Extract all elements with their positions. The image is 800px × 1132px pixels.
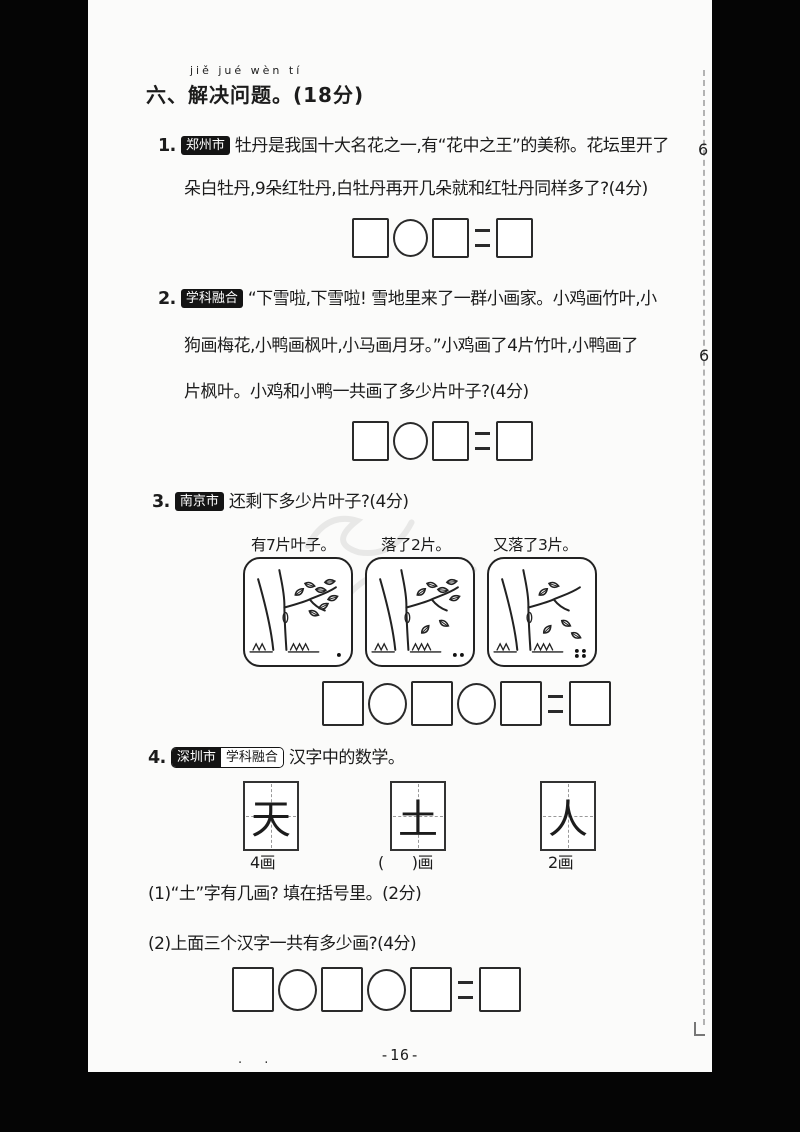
counter-dot — [575, 654, 579, 658]
operator-circle[interactable] — [367, 969, 406, 1011]
answer-box[interactable] — [352, 421, 389, 461]
q4-city-badge: 深圳市 — [172, 748, 221, 767]
section-pinyin: jiě jué wèn tí — [190, 64, 302, 77]
answer-box[interactable] — [410, 967, 452, 1012]
leaf-icon — [327, 595, 338, 602]
q1-edge-digit: 6 — [698, 140, 708, 159]
leaf-icon — [560, 619, 571, 629]
leaf-icon — [325, 580, 335, 585]
operator-circle[interactable] — [457, 683, 496, 725]
tree-drawing-2 — [367, 559, 468, 660]
leaf-icon — [438, 619, 449, 629]
page-border-dashed-line — [703, 70, 705, 1025]
q1-line2: 朵白牡丹,9朵红牡丹,白牡丹再开几朵就和红牡丹同样多了?(4分) — [184, 174, 648, 199]
card-character-2: 土 — [392, 783, 444, 849]
q4-combined-badge: 深圳市学科融合 — [171, 747, 284, 768]
answer-box[interactable] — [322, 681, 364, 726]
leaf-icon — [318, 602, 329, 610]
leaf-icon — [447, 580, 457, 585]
tree-picture-3 — [487, 557, 597, 667]
q1-number: 1. — [158, 136, 176, 156]
q3-city-badge: 南京市 — [175, 492, 224, 511]
leaf-icon — [548, 581, 559, 589]
q4-sub2: (2)上面三个汉字一共有多少画?(4分) — [148, 929, 416, 954]
leaf-icon — [294, 587, 305, 596]
equation-row-4 — [232, 967, 521, 1012]
leaf-icon — [538, 587, 549, 596]
counter-dot — [582, 654, 586, 658]
tree-drawing-3 — [489, 559, 590, 660]
bracket-open: ( — [378, 853, 384, 872]
q1-line1: 1.郑州市牡丹是我国十大名花之一,有“花中之王”的美称。花坛里开了 — [158, 131, 669, 156]
tree-caption-2: 落了2片。 — [381, 533, 450, 555]
q2-edge-digit: 6 — [699, 346, 709, 365]
q2-number: 2. — [158, 289, 176, 309]
q4-subject-badge: 学科融合 — [221, 748, 283, 767]
q4-number: 4. — [148, 748, 166, 768]
equation-row-3 — [322, 681, 611, 726]
scan-dots: . . — [238, 1052, 277, 1067]
card-character-3: 人 — [542, 783, 594, 849]
counter-dot — [337, 653, 341, 657]
answer-box[interactable] — [569, 681, 611, 726]
answer-box[interactable] — [479, 967, 521, 1012]
q2-line2: 狗画梅花,小鸭画枫叶,小马画月牙。”小鸡画了4片竹叶,小鸭画了 — [184, 331, 638, 356]
equals-sign — [548, 695, 563, 713]
leaf-icon — [426, 581, 437, 589]
tree-caption-3: 又落了3片。 — [493, 533, 577, 555]
tree-caption-1: 有7片叶子。 — [251, 533, 335, 555]
leaf-icon — [542, 624, 553, 634]
operator-circle[interactable] — [393, 422, 428, 460]
page-number: -16- — [380, 1046, 420, 1064]
answer-box[interactable] — [432, 218, 469, 258]
counter-dot — [460, 653, 464, 657]
operator-circle[interactable] — [368, 683, 407, 725]
q3-number: 3. — [152, 492, 170, 512]
answer-box[interactable] — [500, 681, 542, 726]
section-title-text: 六、解决问题。 — [146, 83, 293, 107]
answer-box[interactable] — [352, 218, 389, 258]
q4-line: 4.深圳市学科融合汉字中的数学。 — [148, 743, 404, 768]
equals-sign — [475, 432, 490, 450]
answer-box[interactable] — [432, 421, 469, 461]
counter-dot — [575, 649, 579, 653]
worksheet-page: jiě jué wèn tí 六、解决问题。(18分) 1.郑州市牡丹是我国十大… — [88, 0, 712, 1072]
tree-picture-1 — [243, 557, 353, 667]
q1-text1: 牡丹是我国十大名花之一,有“花中之王”的美称。花坛里开了 — [235, 136, 669, 156]
q4-text: 汉字中的数学。 — [289, 748, 405, 768]
card-label-3: 2画 — [548, 849, 573, 873]
answer-box[interactable] — [496, 218, 533, 258]
answer-box[interactable] — [496, 421, 533, 461]
answer-box[interactable] — [232, 967, 274, 1012]
card-character-1: 天 — [245, 783, 297, 849]
counter-dot — [453, 653, 457, 657]
q3-text: 还剩下多少片叶子?(4分) — [229, 492, 409, 512]
operator-circle[interactable] — [278, 969, 317, 1011]
screen-background: { "section_header": { "pinyin": "jiě jué… — [0, 0, 800, 1132]
character-card-2: 土 — [390, 781, 446, 851]
leaf-icon — [304, 581, 315, 589]
leaf-icon — [308, 609, 319, 618]
q2-line1: 2.学科融合“下雪啦,下雪啦! 雪地里来了一群小画家。小鸡画竹叶,小 — [158, 284, 657, 309]
q2-line3: 片枫叶。小鸡和小鸭一共画了多少片叶子?(4分) — [184, 377, 529, 402]
operator-circle[interactable] — [393, 219, 428, 257]
leaf-icon — [449, 595, 460, 602]
counter-dot — [582, 649, 586, 653]
page-border-corner — [694, 1022, 705, 1036]
equation-row-1 — [352, 218, 533, 258]
card-label-2: ()画 — [378, 849, 433, 873]
tree-picture-2 — [365, 557, 475, 667]
character-card-1: 天 — [243, 781, 299, 851]
equals-sign — [458, 981, 473, 999]
character-card-3: 人 — [540, 781, 596, 851]
tree-drawing-1 — [245, 559, 346, 660]
bracket-close: )画 — [412, 853, 433, 872]
q1-city-badge: 郑州市 — [181, 136, 230, 155]
leaf-icon — [420, 624, 431, 634]
q4-sub1: (1)“土”字有几画? 填在括号里。(2分) — [148, 879, 421, 904]
answer-box[interactable] — [411, 681, 453, 726]
leaf-icon — [571, 631, 582, 640]
q2-subject-badge: 学科融合 — [181, 289, 243, 308]
leaf-icon — [416, 587, 427, 596]
answer-box[interactable] — [321, 967, 363, 1012]
equation-row-2 — [352, 421, 533, 461]
section-points: (18分) — [293, 83, 364, 107]
equals-sign — [475, 229, 490, 247]
q3-line: 3.南京市还剩下多少片叶子?(4分) — [152, 487, 408, 512]
card-label-1: 4画 — [250, 849, 275, 873]
section-title: 六、解决问题。(18分) — [146, 79, 364, 108]
q2-text1: “下雪啦,下雪啦! 雪地里来了一群小画家。小鸡画竹叶,小 — [248, 289, 657, 309]
